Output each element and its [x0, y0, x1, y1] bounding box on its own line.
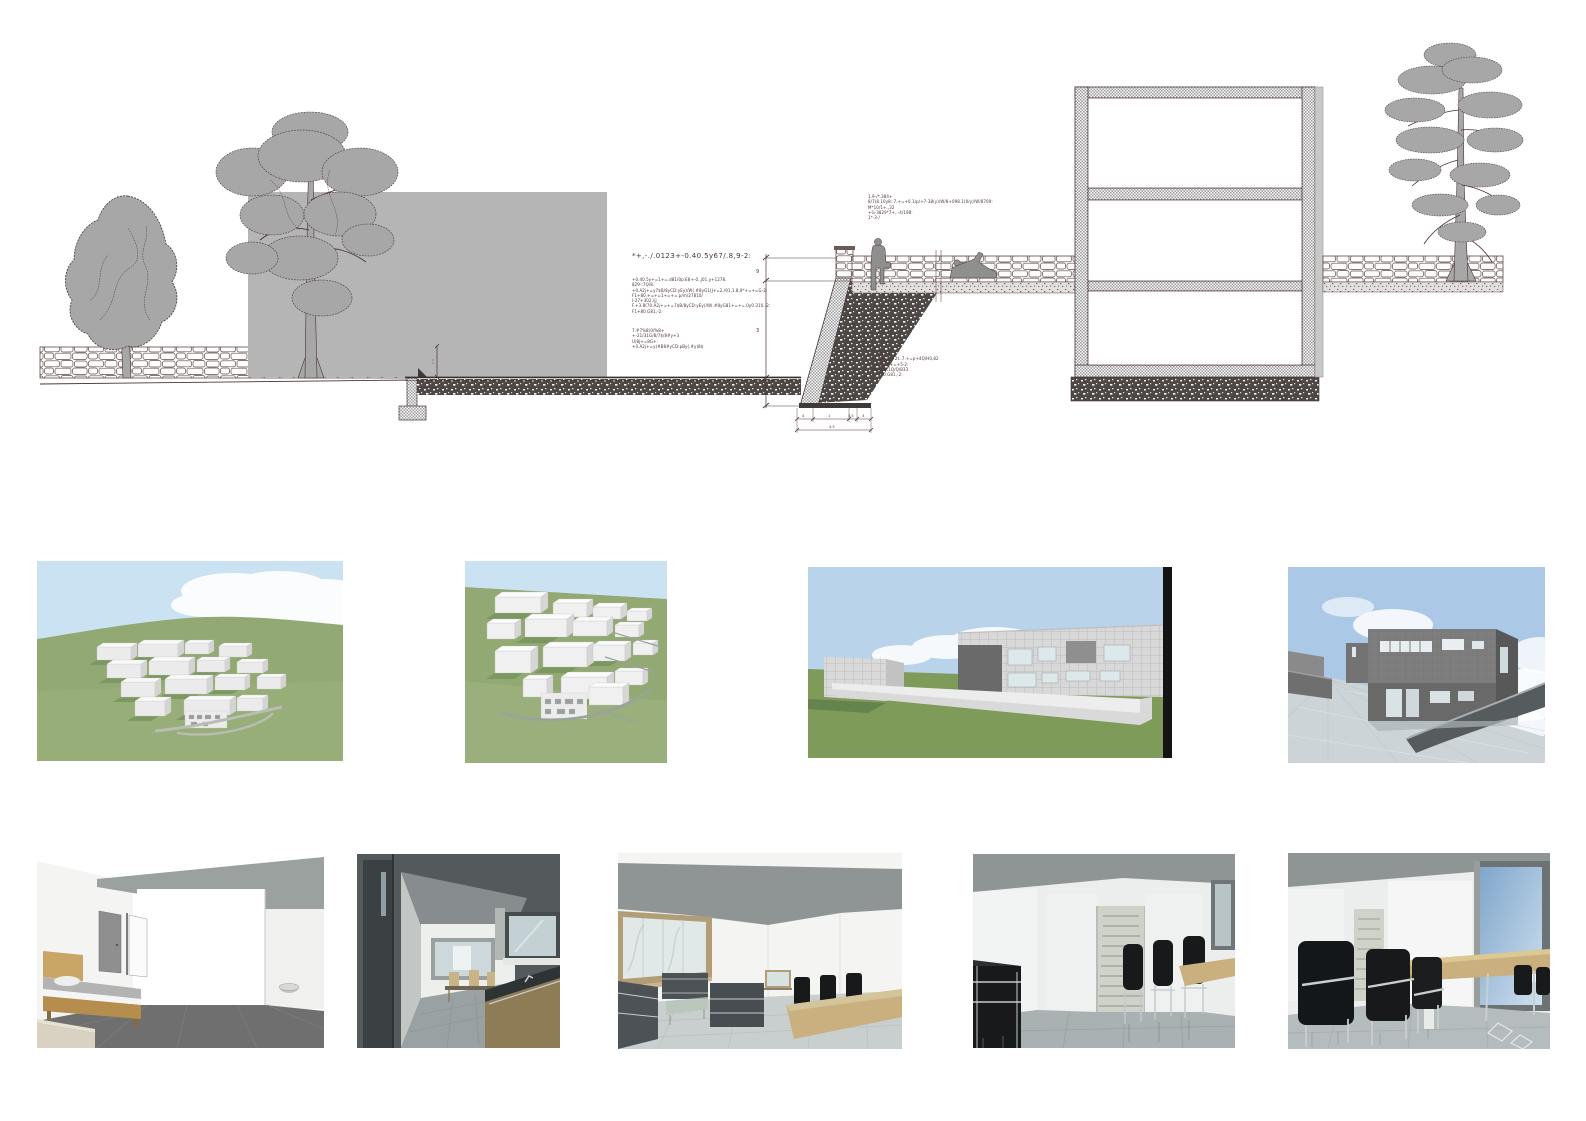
- dark-entry: [958, 645, 1002, 693]
- right-wall: [257, 909, 324, 1009]
- section-annotation-b: 7.#7%8(0/%8+ +-21/31G/8/7$/8#y+3 U/8j+=8…: [632, 328, 703, 349]
- black-chairs-behind: [1514, 965, 1550, 995]
- niche-window: [764, 971, 792, 989]
- svg-text:3.5: 3.5: [848, 414, 854, 418]
- door-panel: [363, 854, 393, 1048]
- section-annotation-d: -/.#/78+ F+=d+.8+2t..7.+=p+4Q/H0,82 M8,0…: [872, 351, 939, 377]
- section-note-main: *+,-./.0123+-0.40.5y67/.8,9-2:: [632, 252, 752, 260]
- render-site-aerial-near: [465, 561, 667, 763]
- render-interior-living: [618, 853, 902, 1049]
- render-interior-dining: [1288, 853, 1550, 1049]
- svg-text:4.5: 4.5: [829, 425, 835, 429]
- frame-edge-bar: [1163, 567, 1172, 758]
- right-ground: [1323, 256, 1503, 292]
- wall-panel-mid: [1047, 894, 1097, 1012]
- site-section-drawing: 9 3 4 1 3.5 3 4.5: [0, 0, 1586, 460]
- render-exterior-darkhouse: [1288, 567, 1545, 763]
- render-exterior-complex: [808, 567, 1172, 758]
- svg-text:1: 1: [828, 414, 830, 418]
- window-sliver: [1211, 880, 1235, 950]
- dimension-lines-bottom: 4 1 3.5 3 4.5: [795, 408, 873, 433]
- svg-text:3: 3: [862, 414, 864, 418]
- main-building: [958, 625, 1164, 697]
- black-cabinet: [973, 960, 1021, 1048]
- walkway-slab: [405, 377, 801, 395]
- render-interior-stairhall: [973, 854, 1235, 1048]
- svg-text:3: 3: [756, 328, 759, 334]
- svg-text:9: 9: [756, 269, 759, 275]
- presentation-board: 9 3 4 1 3.5 3 4.5: [0, 0, 1586, 1121]
- render-interior-corridor-kitchen: [357, 854, 560, 1048]
- kitchen-window: [495, 908, 560, 965]
- render-site-aerial-far: [37, 561, 343, 761]
- pine-tree: [1385, 43, 1523, 281]
- render-interior-bedroom: [37, 853, 324, 1048]
- building-section: [1071, 87, 1323, 401]
- section-annotation-c: 1.9-/*.384+ 8/7(8.10y8:.7.+=+0.1/p/+7-38…: [868, 194, 993, 220]
- bright-wall-panel: [137, 889, 265, 1005]
- svg-text:4: 4: [802, 414, 805, 418]
- section-annotation-a: +0.40.5y+=1+=.d81/0p:E8+-0.,j01.y+1278. …: [632, 277, 770, 314]
